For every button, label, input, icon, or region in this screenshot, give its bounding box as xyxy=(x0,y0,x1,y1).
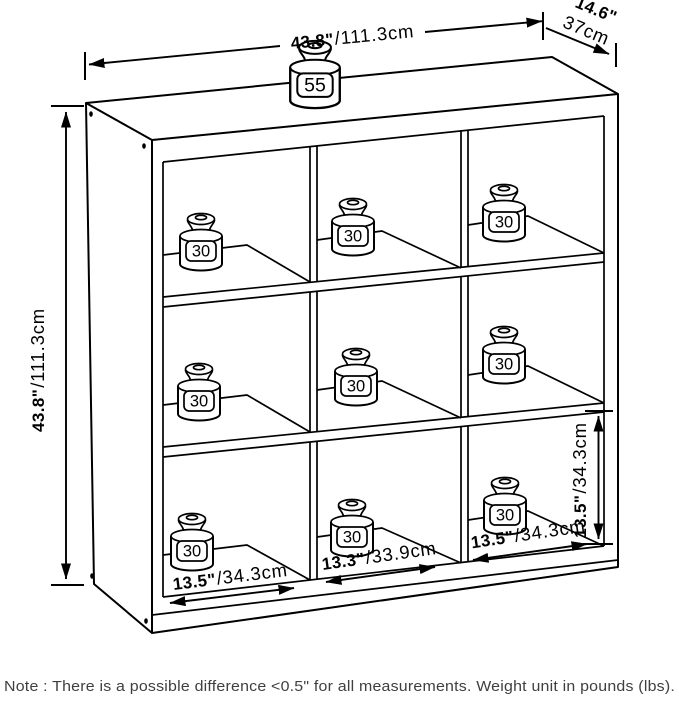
depth-dimension: 14.6" 37cm xyxy=(546,0,620,67)
weight-icon-cube-7: 30 xyxy=(171,514,213,571)
svg-text:30: 30 xyxy=(190,393,208,411)
svg-text:30: 30 xyxy=(495,214,513,232)
svg-text:30: 30 xyxy=(495,356,513,374)
note-text: Note : There is a possible difference <0… xyxy=(4,678,675,695)
height-dimension-label: 43.8"/111.3cm xyxy=(27,308,48,432)
height-dimension: 43.8"/111.3cm xyxy=(27,106,84,585)
svg-text:30: 30 xyxy=(192,243,210,261)
weight-icon-cube-2: 30 xyxy=(332,199,374,256)
svg-text:30: 30 xyxy=(344,228,362,246)
weight-icon-cube-3: 30 xyxy=(483,185,525,242)
weight-top-label: 55 xyxy=(304,75,326,97)
cabinet-left-side-panel xyxy=(86,103,152,633)
width-dimension-label: 43.8"/111.3cm xyxy=(290,20,415,53)
weight-icon-cube-6: 30 xyxy=(483,327,525,384)
product-dimension-diagram: 55 30 30 30 30 30 30 30 30 30 xyxy=(0,0,679,701)
svg-text:30: 30 xyxy=(347,378,365,396)
svg-text:30: 30 xyxy=(496,507,514,525)
svg-text:30: 30 xyxy=(343,529,361,547)
screw-hole-dots xyxy=(89,111,148,624)
weight-icon-cube-4: 30 xyxy=(178,364,220,421)
svg-text:30: 30 xyxy=(183,543,201,561)
cabinet-top-surface xyxy=(86,57,618,140)
weight-icon-cube-5: 30 xyxy=(335,349,377,406)
weight-icon-cube-1: 30 xyxy=(180,214,222,271)
